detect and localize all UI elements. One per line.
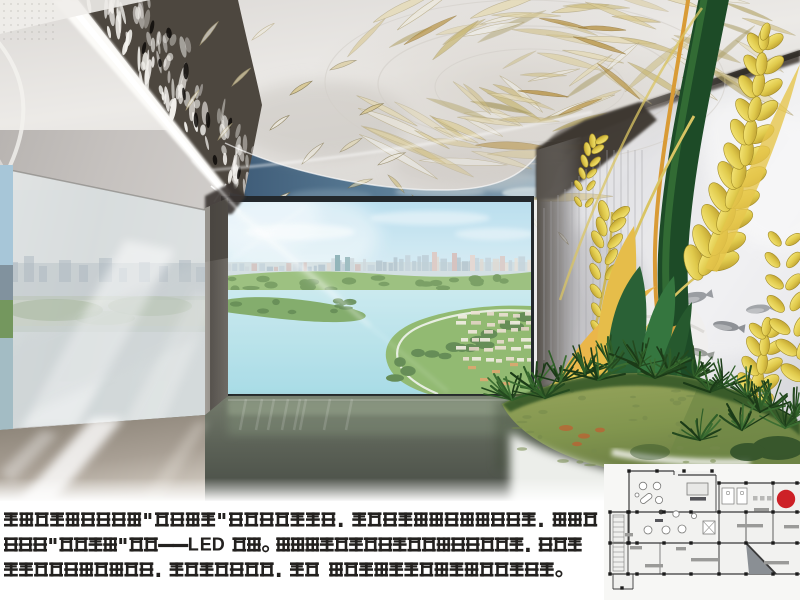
svg-text:E: E: [200, 535, 212, 555]
svg-text:L: L: [188, 535, 199, 555]
svg-text:D: D: [212, 535, 225, 555]
